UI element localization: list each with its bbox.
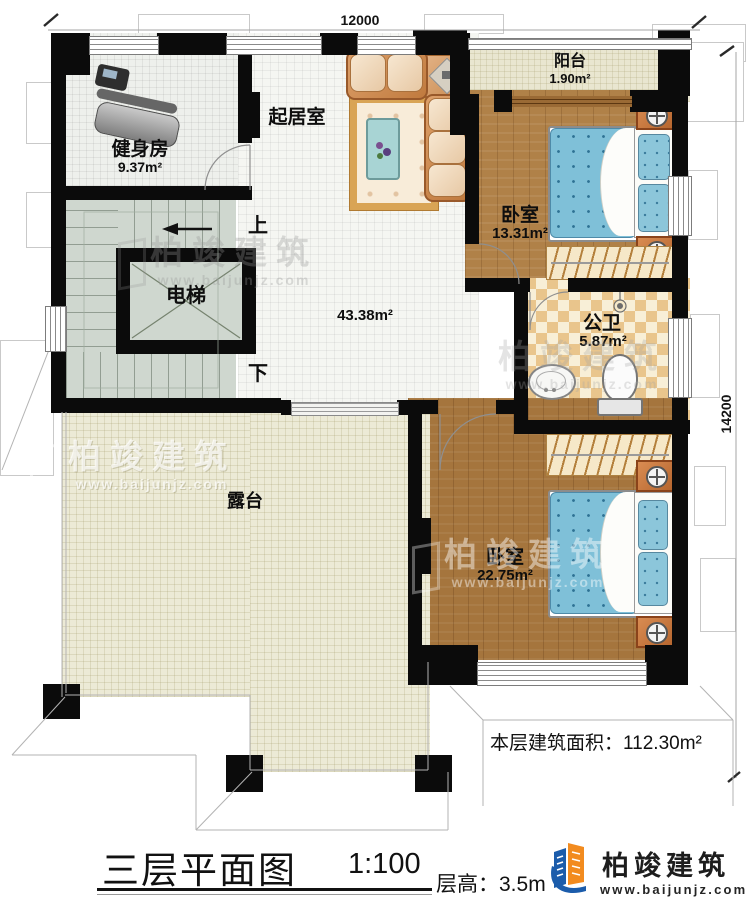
pillow	[638, 134, 670, 180]
dimension-width: 12000	[330, 12, 390, 28]
wall-segment	[51, 186, 252, 200]
stair-treads-lower	[66, 352, 236, 398]
room-label-bedroom1: 卧室	[490, 206, 550, 226]
dimension-height: 14200	[718, 386, 734, 442]
coffee-table	[366, 118, 400, 180]
exterior-frame	[686, 42, 744, 122]
stairs-up-label: 上	[245, 216, 271, 237]
exterior-frame	[26, 82, 54, 144]
sink	[528, 364, 576, 400]
wall-segment	[514, 420, 690, 434]
room-label-living: 起居室	[252, 108, 342, 128]
wall-segment	[496, 400, 528, 414]
room-label-bedroom2: 卧室	[472, 548, 538, 568]
pillow	[638, 552, 668, 606]
flower-icon	[376, 142, 383, 149]
exterior-frame	[700, 558, 736, 632]
room-terrace-floor-lower	[250, 410, 430, 772]
room-area-balcony: 1.90m²	[535, 72, 605, 86]
nightstand	[636, 460, 676, 492]
floor-plan-canvas: 健身房 9.37m² 起居室 43.38m² 阳台 1.90m² 卧室 13.3…	[0, 0, 750, 912]
pillow	[638, 184, 670, 232]
brand-logo-icon	[546, 838, 596, 900]
room-area-bathroom: 5.87m²	[568, 334, 638, 350]
wall-segment	[408, 400, 438, 414]
column	[43, 684, 80, 719]
sink-tap	[544, 388, 548, 392]
sofa-cushion	[428, 164, 466, 197]
wall-segment	[281, 400, 291, 415]
wall-segment	[494, 90, 512, 112]
pillow	[638, 500, 668, 550]
stairs-down-label: 下	[245, 364, 271, 385]
wall-segment	[51, 75, 66, 186]
flower-icon	[377, 153, 383, 159]
window	[89, 36, 159, 55]
sink-tap	[552, 388, 556, 392]
wall-segment	[51, 350, 66, 400]
column	[415, 755, 452, 792]
room-label-terrace: 露台	[210, 492, 280, 511]
wall-segment	[465, 278, 530, 292]
room-label-elevator: 电梯	[140, 286, 232, 307]
exterior-frame	[688, 170, 718, 240]
window	[668, 176, 692, 236]
room-area-gym: 9.37m²	[80, 160, 200, 175]
wall-segment	[51, 33, 90, 75]
wall-segment	[408, 400, 422, 660]
room-area-bedroom2: 22.75m²	[462, 568, 548, 584]
room-label-balcony: 阳台	[540, 54, 600, 71]
sofa-cushion	[428, 131, 466, 164]
room-label-bathroom: 公卫	[572, 314, 632, 334]
sofa-cushion	[387, 54, 423, 92]
floor-height-text: 层高：3.5m	[436, 868, 546, 898]
bedside-lamp-icon	[646, 622, 668, 644]
wall-segment	[408, 645, 478, 685]
sofa-cushion	[350, 54, 386, 92]
window	[226, 36, 322, 55]
page-title: 三层平面图	[102, 840, 297, 894]
sink-basin	[536, 371, 566, 391]
wall-segment	[238, 47, 252, 143]
brand-url: www.baijunjz.com	[600, 882, 747, 897]
exterior-frame	[26, 192, 54, 248]
wall-segment	[630, 90, 672, 112]
title-underline	[97, 888, 432, 891]
toilet-tank	[597, 398, 643, 416]
exterior-frame	[694, 466, 726, 526]
table-lamp-center	[442, 71, 450, 79]
room-area-bedroom1: 13.31m²	[482, 226, 558, 242]
brand-name: 柏竣建筑	[602, 844, 730, 883]
room-area-living: 43.38m²	[325, 308, 405, 324]
sliding-door	[291, 402, 399, 416]
tv-icon	[422, 518, 431, 574]
floor-area-text: 本层建筑面积：112.30m²	[490, 728, 702, 755]
scale-text: 1:100	[348, 848, 421, 881]
title-underline-thin	[97, 894, 432, 895]
flower-icon	[383, 148, 391, 156]
column	[226, 755, 263, 792]
window	[357, 36, 416, 55]
balcony-railing	[468, 38, 692, 50]
wardrobe	[546, 246, 674, 280]
wall-segment	[465, 94, 479, 244]
exterior-frame	[690, 314, 720, 398]
wall-segment	[51, 398, 281, 413]
wall-segment	[51, 200, 66, 306]
toilet	[602, 354, 638, 402]
room-label-gym: 健身房	[80, 140, 200, 160]
window	[668, 318, 692, 398]
nightstand	[636, 616, 676, 648]
wall-segment	[645, 645, 688, 685]
bedside-lamp-icon	[646, 466, 668, 488]
sliding-door	[512, 96, 632, 107]
wall-segment	[320, 33, 358, 55]
exterior-frame	[0, 340, 54, 476]
window	[477, 662, 647, 686]
window	[45, 306, 67, 352]
wall-segment	[568, 278, 672, 292]
wall-segment	[157, 33, 227, 55]
